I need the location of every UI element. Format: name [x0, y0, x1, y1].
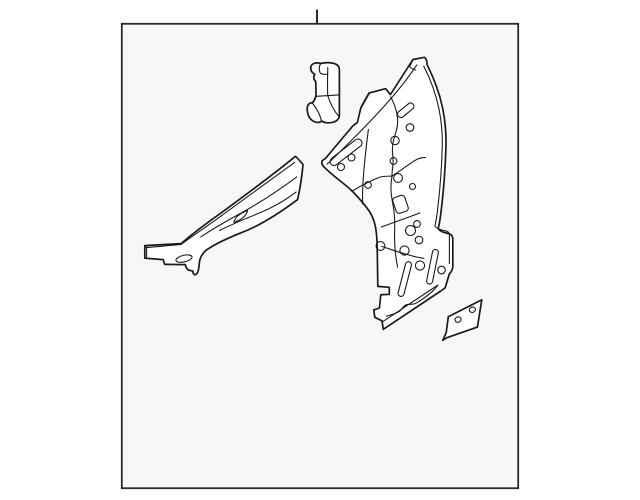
parts-line-art [0, 0, 640, 500]
parts-diagram-canvas [0, 0, 640, 500]
